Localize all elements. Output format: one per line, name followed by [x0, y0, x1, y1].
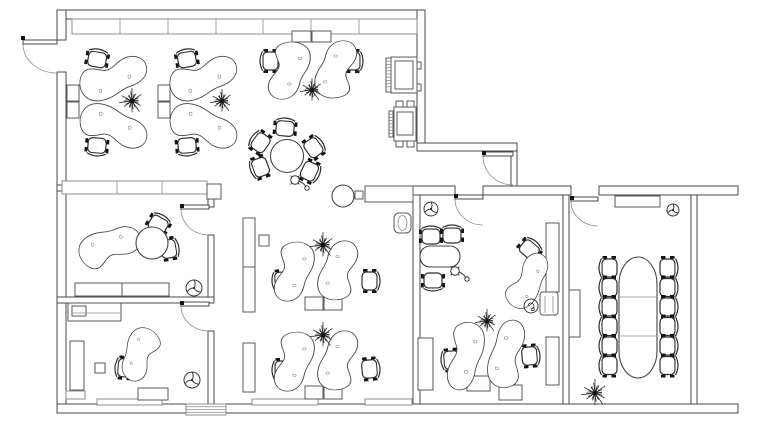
chair-seat: [602, 357, 617, 375]
chair-back: [599, 356, 602, 375]
wall: [57, 10, 425, 19]
meeting-table: [420, 246, 460, 267]
chair-armrest: [419, 230, 422, 235]
door-hinge-dot: [570, 196, 574, 200]
wall: [599, 186, 738, 195]
copier-top: [397, 112, 413, 135]
chair-armrest: [364, 378, 369, 381]
small-cabinet: [259, 235, 269, 246]
door: [180, 301, 209, 331]
door-swing-arc: [23, 44, 57, 73]
small-cabinet: [355, 191, 363, 199]
chair-armrest: [175, 140, 178, 145]
fan-hub: [193, 287, 195, 289]
chair-armrest: [524, 365, 529, 368]
sideboard: [546, 223, 559, 292]
round-table: [332, 185, 354, 207]
wall: [57, 72, 66, 413]
chair-back: [424, 289, 443, 292]
wall-cabinet-row: [72, 19, 417, 34]
chair-armrest: [661, 334, 666, 337]
chair-armrest: [603, 334, 608, 337]
lamp-arm: [459, 272, 466, 278]
door: [570, 196, 598, 226]
fan-blade: [192, 372, 193, 380]
task-chair: [300, 132, 329, 162]
plant: [210, 89, 230, 112]
chair-armrest: [661, 295, 666, 298]
round-table: [271, 140, 304, 173]
task-chair: [173, 47, 200, 69]
fan-blade: [194, 288, 201, 292]
chair-armrest: [661, 354, 666, 357]
lamp-tick: [458, 274, 459, 275]
floor-plan-canvas: [0, 0, 768, 424]
wall: [483, 186, 571, 195]
chair-back: [676, 337, 679, 356]
door-hinge-dot: [180, 204, 184, 208]
chair-armrest: [612, 375, 617, 378]
door: [482, 151, 513, 185]
task-chair: [362, 269, 380, 293]
chair-seat: [660, 259, 675, 277]
task-chair: [440, 225, 464, 243]
sideboard: [122, 283, 169, 296]
sideboard: [546, 337, 559, 385]
chair-armrest: [612, 315, 617, 318]
sideboard: [243, 218, 255, 267]
office-cabinet: [540, 292, 558, 315]
chair-armrest: [661, 276, 666, 279]
door-hinge-dot: [454, 194, 458, 198]
wall: [417, 10, 425, 146]
door-leaf: [455, 195, 483, 199]
sideboard: [569, 290, 580, 337]
sideboard: [418, 338, 433, 390]
chair-armrest: [670, 295, 675, 298]
chair-armrest: [421, 283, 424, 288]
copier-tab: [407, 141, 414, 147]
chair-seat: [602, 298, 617, 316]
small-cabinet: [207, 184, 221, 199]
door-leaf: [571, 197, 598, 201]
chair-seat: [275, 120, 294, 137]
chair-back: [260, 52, 263, 71]
chair-armrest: [440, 238, 443, 243]
copier: [386, 57, 421, 93]
door-swing-arc: [455, 199, 483, 225]
chair-back: [599, 259, 602, 278]
chair-armrest: [164, 258, 169, 262]
chair-armrest: [276, 358, 281, 361]
fan-blade: [185, 380, 192, 384]
desk-pedestal: [158, 85, 170, 101]
sideboard: [243, 343, 255, 392]
chair-armrest: [661, 256, 666, 259]
door-hinge-dot: [21, 36, 25, 40]
lamp-tick: [298, 176, 299, 177]
plant-center: [310, 88, 315, 93]
chair-armrest: [603, 295, 608, 298]
chair-armrest: [273, 129, 276, 134]
lamp-base: [305, 186, 309, 190]
sideboard: [615, 196, 660, 207]
wall: [563, 195, 569, 404]
desk-pedestal: [67, 85, 79, 101]
task-chair: [174, 137, 199, 157]
chair-seat: [302, 136, 325, 159]
wall: [417, 143, 517, 151]
kidney-desk: [108, 322, 169, 386]
door-swing-arc: [571, 201, 598, 226]
chair-armrest: [273, 120, 276, 125]
wall: [691, 195, 697, 404]
conference-table-top: [619, 257, 657, 378]
plant-center: [485, 319, 490, 324]
office-cabinet-body: [540, 292, 558, 315]
chair-seat: [602, 337, 617, 355]
radiator: [365, 399, 412, 405]
chair-armrest: [612, 334, 617, 337]
chair-armrest: [419, 239, 422, 244]
radiator: [66, 391, 85, 399]
chair-back: [676, 317, 679, 336]
chair-armrest: [363, 269, 368, 272]
chair-back: [676, 298, 679, 317]
fan-hub: [672, 209, 674, 211]
chair-back: [361, 52, 364, 71]
chair-armrest: [106, 149, 109, 154]
fan-hub: [191, 379, 193, 381]
chair-armrest: [670, 256, 675, 259]
door-leaf: [483, 152, 513, 156]
task-chair: [521, 343, 541, 368]
fan-blade: [431, 202, 432, 209]
plant-center: [321, 333, 326, 338]
copier-tab: [396, 101, 403, 107]
task-chair: [272, 117, 297, 137]
chair-back: [676, 259, 679, 278]
chair-seat: [177, 51, 197, 69]
wall: [208, 235, 214, 303]
desk-pedestal: [292, 31, 311, 42]
wall-cabinet-row: [62, 181, 207, 194]
small-cabinet: [95, 363, 105, 373]
desk-pedestal: [138, 388, 168, 400]
chair-armrest: [612, 256, 617, 259]
chair-armrest: [603, 276, 608, 279]
chair-armrest: [373, 378, 378, 381]
chair-armrest: [117, 377, 122, 380]
chair-armrest: [461, 229, 464, 234]
chair-armrest: [612, 354, 617, 357]
chair-armrest: [670, 354, 675, 357]
chair-back: [676, 278, 679, 297]
desk-pedestal: [305, 297, 323, 310]
chair-armrest: [196, 147, 199, 152]
plant-frond: [322, 235, 323, 243]
chair-seat: [87, 137, 106, 154]
chair-armrest: [196, 59, 200, 64]
plant-center: [593, 391, 598, 396]
chair-back: [599, 317, 602, 336]
kidney-desk-top: [108, 322, 169, 386]
plant-center: [130, 99, 135, 104]
door-swing-arc: [181, 209, 209, 235]
chair-armrest: [294, 131, 297, 136]
lamp-tick: [291, 176, 292, 177]
door-leaf: [23, 40, 57, 44]
chair-armrest: [372, 290, 377, 293]
chair-seat: [443, 228, 461, 243]
door-swing-arc: [483, 156, 513, 185]
sideboard: [75, 283, 122, 296]
chair-armrest: [533, 365, 538, 368]
chair-armrest: [612, 276, 617, 279]
door-hinge-dot: [180, 301, 184, 305]
waste-bin: [394, 213, 411, 233]
chair-armrest: [670, 375, 675, 378]
kidney-desk: [73, 212, 146, 279]
chair-armrest: [670, 276, 675, 279]
chair-seat: [361, 359, 378, 378]
chair-armrest: [670, 334, 675, 337]
task-chair: [245, 127, 274, 157]
plant-frond: [594, 383, 595, 391]
chair-armrest: [421, 274, 424, 279]
ceiling-fan-symbol: [184, 372, 200, 388]
chair-back: [599, 298, 602, 317]
chair-armrest: [372, 269, 377, 272]
door: [180, 204, 209, 235]
fan-blade: [425, 209, 431, 213]
chair-armrest: [661, 315, 666, 318]
wall: [57, 10, 66, 40]
plant-frond: [224, 100, 228, 101]
chair-armrest: [85, 138, 88, 143]
plant-center: [321, 243, 326, 248]
kidney-desk: [274, 242, 314, 301]
wall: [208, 331, 214, 404]
chair-armrest: [106, 140, 109, 145]
conference-table: [619, 257, 657, 378]
fan-blade: [194, 280, 195, 288]
plant: [581, 379, 605, 405]
task-chair: [361, 356, 381, 381]
desk-pedestal: [312, 31, 331, 42]
copier-tab: [417, 62, 421, 69]
kidney-desk-top: [274, 242, 314, 301]
chair-armrest: [363, 290, 368, 293]
chair-armrest: [670, 315, 675, 318]
chair-seat: [521, 346, 538, 365]
plant: [119, 88, 141, 112]
chair-armrest: [603, 354, 608, 357]
chair-armrest: [603, 375, 608, 378]
door-leaf: [181, 205, 209, 209]
chair-armrest: [175, 149, 178, 154]
copier-tab: [396, 141, 403, 147]
sideboard: [243, 267, 255, 312]
chair-seat: [660, 279, 675, 297]
chair-back: [378, 272, 381, 291]
chair-seat: [660, 318, 675, 336]
chair-back: [443, 225, 462, 228]
lamp-arm: [299, 181, 306, 187]
copier-tab: [417, 84, 421, 91]
fan-hub: [430, 208, 432, 210]
task-chair: [419, 226, 443, 244]
chair-seat: [424, 273, 442, 288]
chair-armrest: [603, 256, 608, 259]
chair-seat: [362, 272, 377, 290]
chair-armrest: [661, 375, 666, 378]
floor-lamp: [451, 267, 470, 282]
task-chair: [247, 153, 272, 182]
lamp-tick: [298, 183, 299, 184]
chair-armrest: [362, 357, 367, 360]
desk-pedestal: [67, 102, 79, 118]
lamp-shade: [451, 267, 460, 276]
chair-armrest: [196, 138, 199, 143]
chair-armrest: [264, 49, 269, 52]
plant-frond: [489, 320, 493, 321]
task-chair: [421, 273, 445, 291]
sideboard: [365, 186, 413, 202]
fan-blade: [431, 209, 437, 213]
chair-armrest: [264, 70, 269, 73]
copier-tab: [407, 101, 414, 107]
small-cabinet: [72, 306, 86, 316]
chair-armrest: [443, 348, 448, 351]
sideboard: [70, 341, 84, 390]
chair-armrest: [442, 274, 445, 279]
lamp-tick: [291, 183, 292, 184]
kidney-desk-top: [73, 212, 146, 279]
cabinet-row-body: [72, 19, 417, 34]
chair-armrest: [169, 236, 174, 240]
chair-seat: [660, 298, 675, 316]
chair-armrest: [440, 229, 443, 234]
task-chair: [84, 137, 109, 157]
chair-armrest: [612, 295, 617, 298]
chair-seat: [87, 51, 107, 69]
task-chair: [84, 47, 111, 69]
chair-seat: [177, 137, 196, 154]
copier-top: [395, 61, 413, 89]
plant-frond: [131, 91, 132, 99]
lamp-base: [465, 277, 469, 281]
door: [21, 36, 57, 73]
fan-blade: [187, 288, 194, 292]
chair-seat: [422, 229, 440, 244]
chair-seat: [602, 318, 617, 336]
radiator: [252, 399, 318, 405]
lamp-shade: [291, 176, 300, 185]
task-chair: [599, 354, 617, 378]
door-swing-arc: [181, 306, 209, 331]
chair-armrest: [442, 283, 445, 288]
chair-seat: [602, 279, 617, 297]
plant-frond: [596, 395, 603, 405]
chair-armrest: [84, 147, 87, 152]
task-chair: [660, 354, 678, 378]
chair-back: [422, 226, 441, 229]
chair-armrest: [274, 269, 279, 272]
plant-frond: [322, 325, 323, 333]
floor-plan-page: [0, 0, 768, 424]
chair-back: [599, 337, 602, 356]
entrance-mat: [186, 404, 226, 415]
lamp-tick: [451, 274, 452, 275]
ceiling-fan-symbol: [186, 280, 202, 296]
chair-armrest: [84, 59, 88, 64]
chair-seat: [602, 259, 617, 277]
cabinet-row-body: [62, 181, 207, 194]
chair-armrest: [174, 54, 178, 59]
wall: [413, 186, 455, 195]
ceiling-fan-symbol: [424, 202, 438, 216]
door-leaf: [181, 302, 209, 306]
chair-armrest: [355, 70, 360, 73]
plant-center: [220, 99, 225, 104]
door: [454, 194, 483, 225]
chair-armrest: [461, 238, 464, 243]
chair-seat: [249, 131, 272, 154]
waste-bin-body: [394, 213, 411, 233]
desk-pedestal: [158, 102, 170, 118]
chair-seat: [660, 357, 675, 375]
chair-back: [676, 356, 679, 375]
fan-blade: [192, 380, 199, 384]
copier: [389, 101, 416, 147]
plant-frond: [314, 89, 318, 90]
chair-armrest: [531, 343, 536, 346]
chair-armrest: [119, 355, 124, 358]
door-hinge-dot: [482, 151, 486, 155]
chair-armrest: [371, 356, 376, 359]
desk-pedestal: [305, 386, 323, 399]
chair-armrest: [107, 54, 111, 59]
chair-armrest: [603, 315, 608, 318]
lamp-tick: [458, 267, 459, 268]
round-table: [136, 227, 168, 259]
ceiling-fan-symbol: [667, 204, 679, 216]
chair-seat: [660, 337, 675, 355]
chair-armrest: [294, 122, 297, 127]
chair-back: [599, 278, 602, 297]
